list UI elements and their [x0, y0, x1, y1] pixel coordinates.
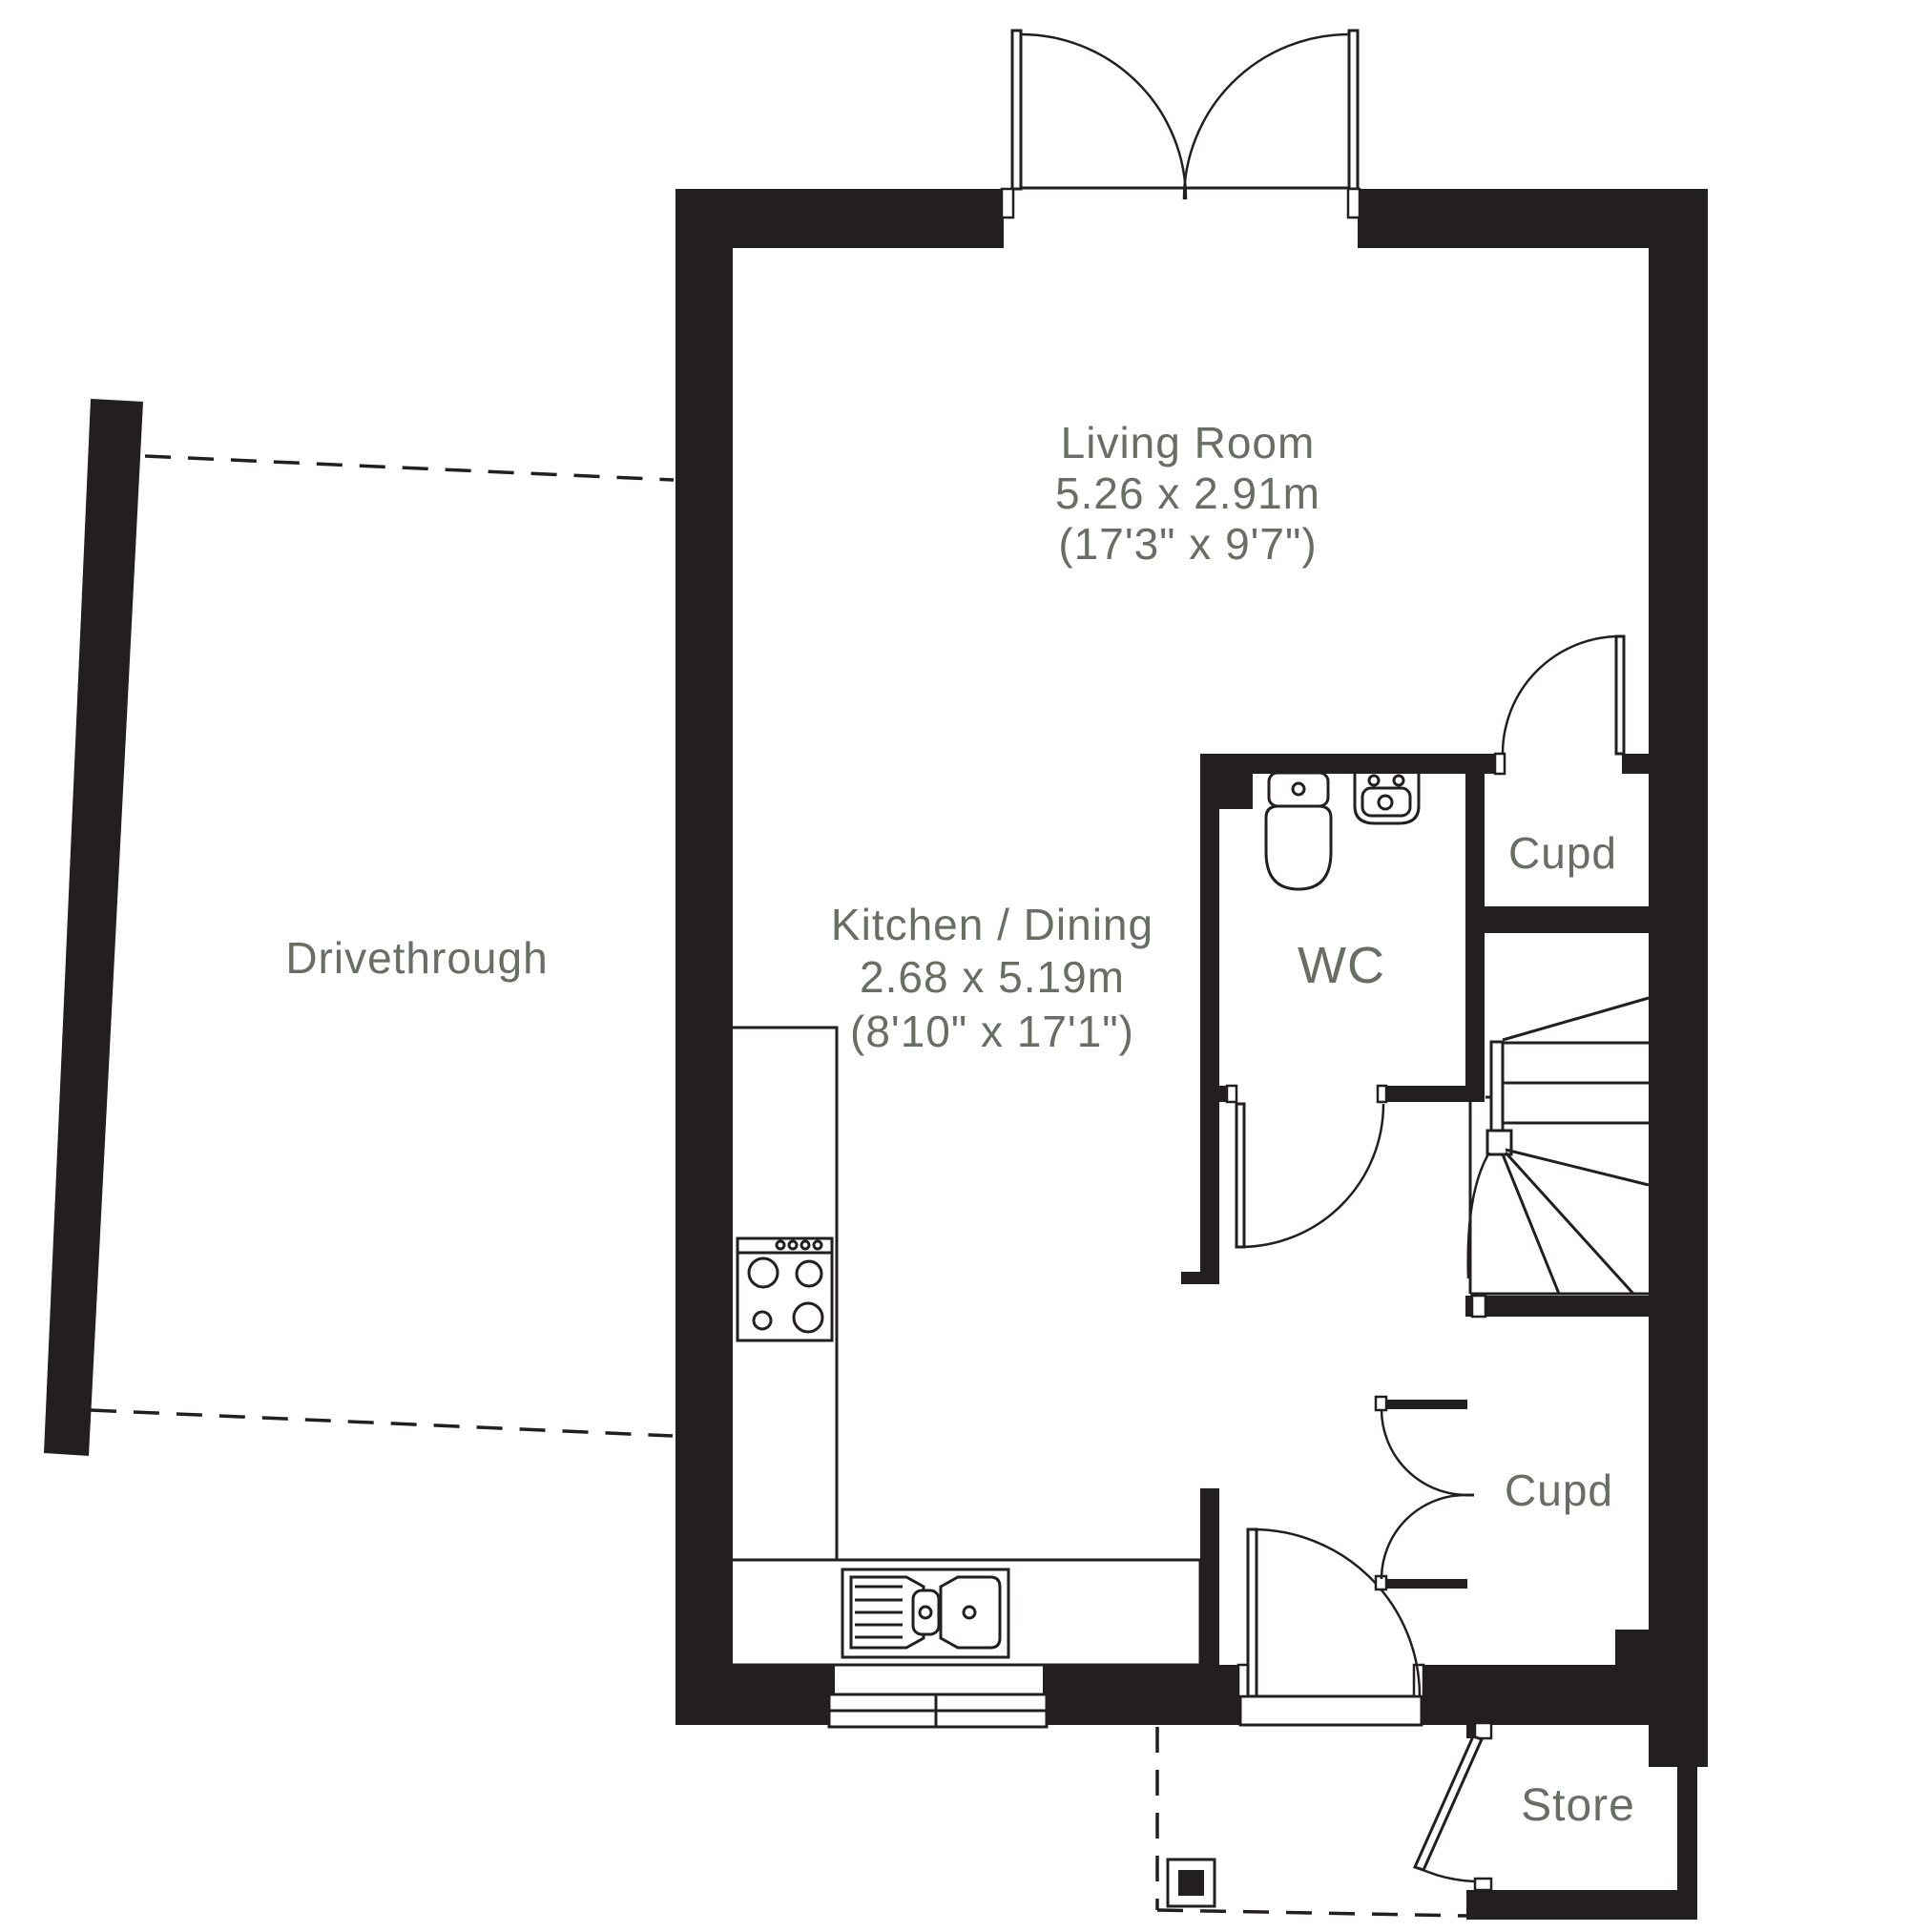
kitchen-sink-icon — [842, 1569, 1008, 1657]
cupboard-lower-doors-icon — [1376, 1296, 1485, 1589]
wc-label: WC — [1298, 937, 1385, 994]
kitchen-dining-metric: 2.68 x 5.19m — [860, 952, 1125, 1002]
cupboard-upper-label: Cupd — [1508, 828, 1617, 878]
front-door-icon — [1238, 1529, 1423, 1725]
stairs — [1468, 998, 1649, 1294]
porch-post-icon — [1168, 1859, 1215, 1906]
drivethrough-label: Drivethrough — [285, 933, 548, 983]
kitchen-window-icon — [829, 1694, 1047, 1727]
drivethrough-wall — [44, 399, 143, 1456]
french-doors-icon — [1002, 31, 1360, 218]
cupboard-upper-door-icon — [1495, 636, 1624, 774]
store-label: Store — [1521, 1780, 1635, 1831]
wash-basin-icon — [1355, 771, 1419, 823]
living-room-metric: 5.26 x 2.91m — [1055, 468, 1320, 518]
living-room-imperial: (17'3" x 9'7") — [1058, 519, 1317, 569]
toilet-icon — [1266, 773, 1331, 889]
kitchen-dining-label: Kitchen / Dining — [831, 900, 1153, 949]
floor-plan-page: Living Room 5.26 x 2.91m (17'3" x 9'7") … — [0, 0, 1932, 1932]
kitchen-dining-imperial: (8'10" x 17'1") — [850, 1007, 1134, 1056]
wc-door-icon — [1227, 1086, 1386, 1247]
floor-plan-drawing: Living Room 5.26 x 2.91m (17'3" x 9'7") … — [0, 0, 1932, 1932]
living-room-label: Living Room — [1061, 418, 1316, 467]
cupboard-lower-label: Cupd — [1505, 1465, 1613, 1515]
store-door-icon — [1415, 1723, 1491, 1890]
hob-icon — [737, 1238, 832, 1340]
